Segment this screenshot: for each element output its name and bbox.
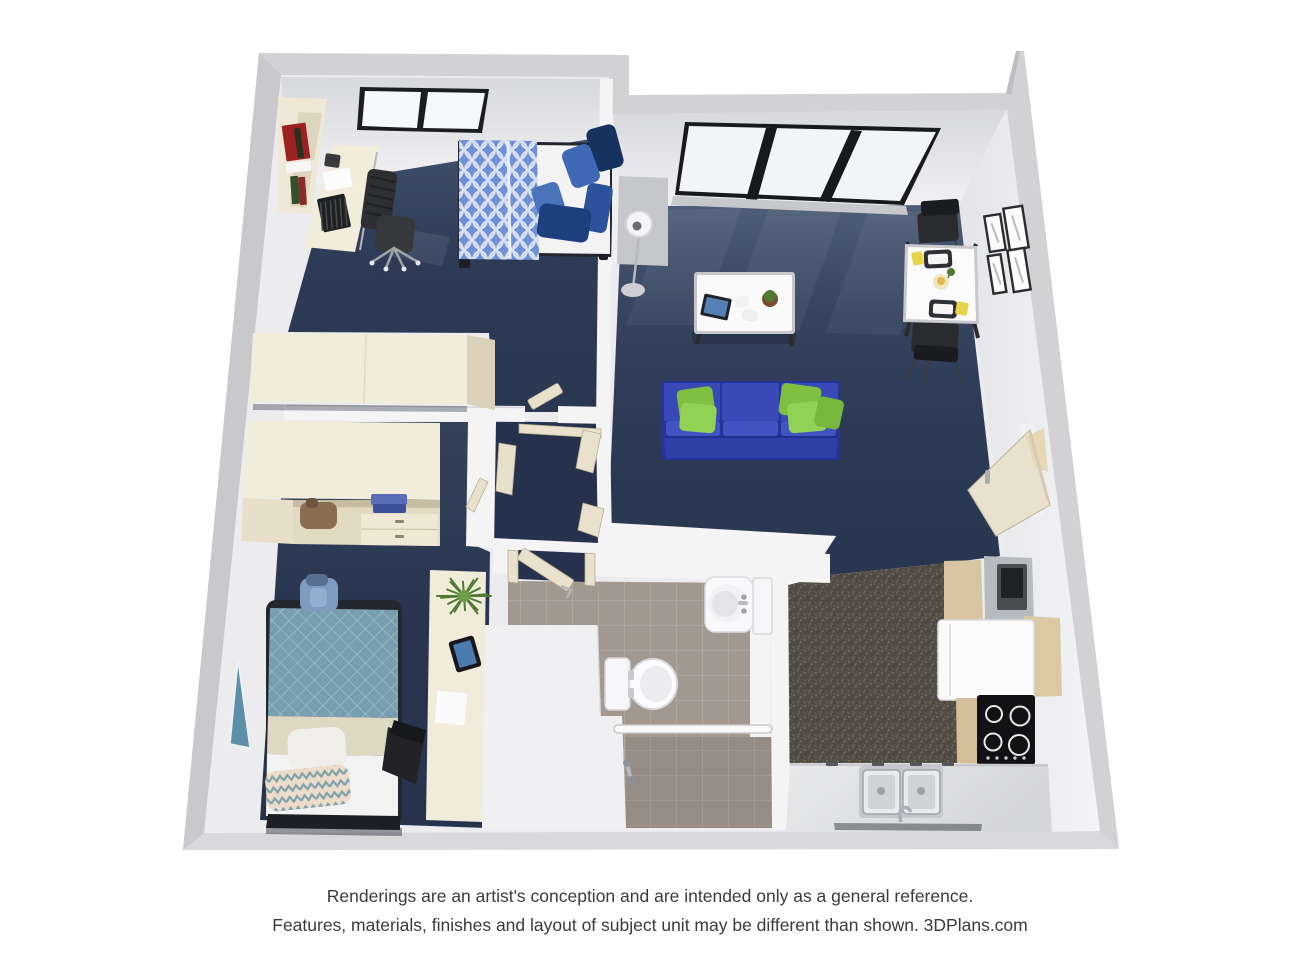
svg-text:Features, materials, finishes: Features, materials, finishes and layout… [272,915,1028,935]
svg-text:Renderings are an artist's con: Renderings are an artist's conception an… [327,886,973,906]
